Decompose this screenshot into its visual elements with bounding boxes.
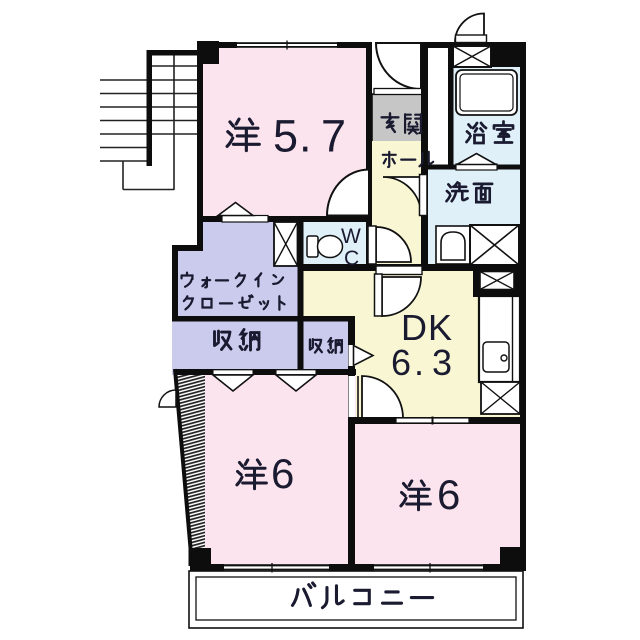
- svg-text:.: .: [414, 342, 424, 383]
- svg-text:W: W: [341, 225, 361, 248]
- svg-text:C: C: [344, 247, 359, 270]
- svg-text:6: 6: [271, 450, 294, 497]
- svg-text:6: 6: [391, 342, 411, 383]
- svg-text:6: 6: [437, 471, 460, 518]
- svg-text:5: 5: [273, 111, 298, 162]
- svg-text:.: .: [299, 111, 312, 162]
- svg-text:7: 7: [321, 111, 346, 162]
- svg-text:3: 3: [432, 342, 452, 383]
